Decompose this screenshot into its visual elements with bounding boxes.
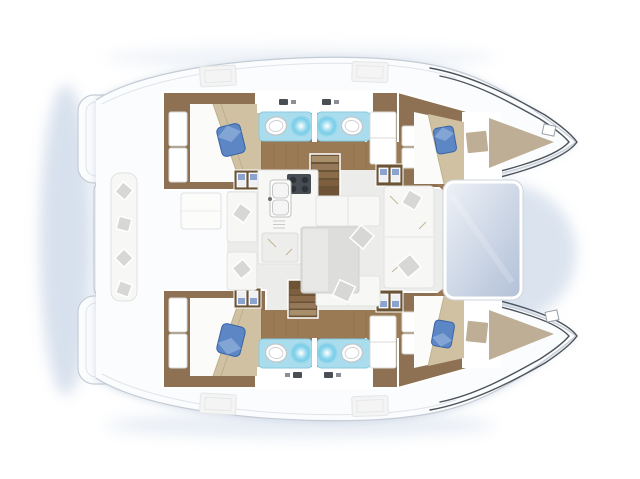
galley-appliance xyxy=(262,233,298,262)
fitting-body xyxy=(545,310,559,322)
shower-glow xyxy=(290,342,312,364)
galley-sink xyxy=(268,180,291,217)
bathroom-divider-wall xyxy=(312,92,317,142)
catamaran-floor-plan xyxy=(0,0,640,479)
port-bathrooms xyxy=(257,92,373,142)
shower-glow xyxy=(316,342,338,364)
fitting-body xyxy=(542,124,556,136)
bench-cushion xyxy=(116,216,132,232)
wardrobe-door xyxy=(169,148,187,182)
port-mid-cabinets xyxy=(370,112,396,164)
starboard-mid-cabinets xyxy=(370,316,396,368)
wardrobe-door xyxy=(169,298,187,332)
deck-hatch xyxy=(200,393,237,415)
starboard-aft-cabin-interior xyxy=(169,298,261,376)
step-pad xyxy=(250,298,257,304)
starboard-bathrooms xyxy=(257,338,373,388)
wardrobe-door xyxy=(169,334,187,368)
tread xyxy=(290,296,317,302)
sink-bowl xyxy=(273,183,289,198)
shower-glow xyxy=(316,115,338,137)
fitting-mark xyxy=(334,100,339,104)
faucet xyxy=(268,197,272,201)
fitting-mark xyxy=(322,99,331,105)
step-pad xyxy=(392,169,399,175)
bow-fitting xyxy=(545,310,559,322)
tread xyxy=(312,156,339,162)
deck-hatch xyxy=(200,65,237,87)
shower-glow xyxy=(290,115,312,137)
fitting-mark xyxy=(293,372,302,378)
coachroof-window xyxy=(443,180,523,300)
tread xyxy=(290,310,317,316)
deck-hatch xyxy=(352,61,389,82)
sink-bowl xyxy=(273,200,289,215)
cabin-steps xyxy=(234,170,261,190)
burner xyxy=(302,186,308,192)
deck-hatch xyxy=(352,395,389,416)
step-pad xyxy=(380,169,387,175)
floor-plan-canvas xyxy=(0,0,640,479)
bed-pillow xyxy=(433,125,457,154)
bathroom-divider-wall xyxy=(312,338,317,388)
burner xyxy=(302,177,308,183)
cushion-pad xyxy=(465,130,489,154)
step-pad xyxy=(380,301,387,307)
bow-locker-cushion xyxy=(465,130,489,154)
step-pad xyxy=(238,298,245,304)
bow-locker-cushion xyxy=(465,320,489,344)
cushion-pad xyxy=(465,320,489,344)
bow-fitting xyxy=(542,124,556,136)
fitting-mark xyxy=(285,373,290,377)
fitting-mark xyxy=(336,373,341,377)
tread xyxy=(312,164,339,170)
saloon-table-leaf xyxy=(303,229,328,291)
bed-pillow xyxy=(431,319,455,348)
fitting-mark xyxy=(324,372,333,378)
step-pad xyxy=(392,301,399,307)
fitting-mark xyxy=(279,99,288,105)
tread xyxy=(290,303,317,309)
wardrobe-door xyxy=(169,112,187,146)
fitting-mark xyxy=(291,100,296,104)
cabin-steps xyxy=(376,164,403,186)
step-pad xyxy=(238,174,245,180)
cabin-steps xyxy=(234,288,261,308)
step-pad xyxy=(250,174,257,180)
